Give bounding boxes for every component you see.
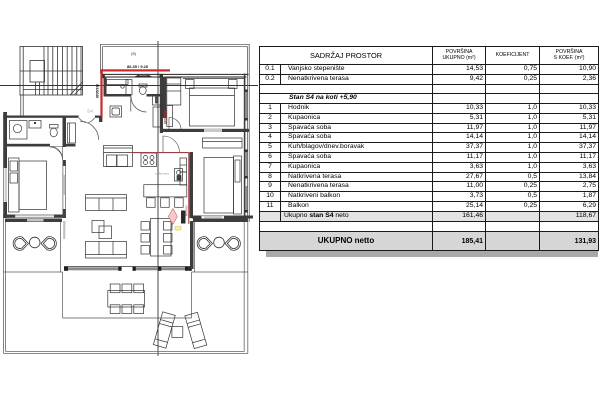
svg-text:a offer sutra: a offer sutra	[155, 172, 169, 176]
svg-text:8635/930: 8635/930	[164, 110, 168, 124]
svg-text:8635/930: 8635/930	[96, 84, 100, 98]
svg-text:8635/930: 8635/930	[185, 205, 189, 216]
svg-text:S4: S4	[87, 109, 93, 115]
svg-text:86.35 / 9.20: 86.35 / 9.20	[127, 64, 149, 69]
svg-text:(B): (B)	[131, 51, 137, 56]
